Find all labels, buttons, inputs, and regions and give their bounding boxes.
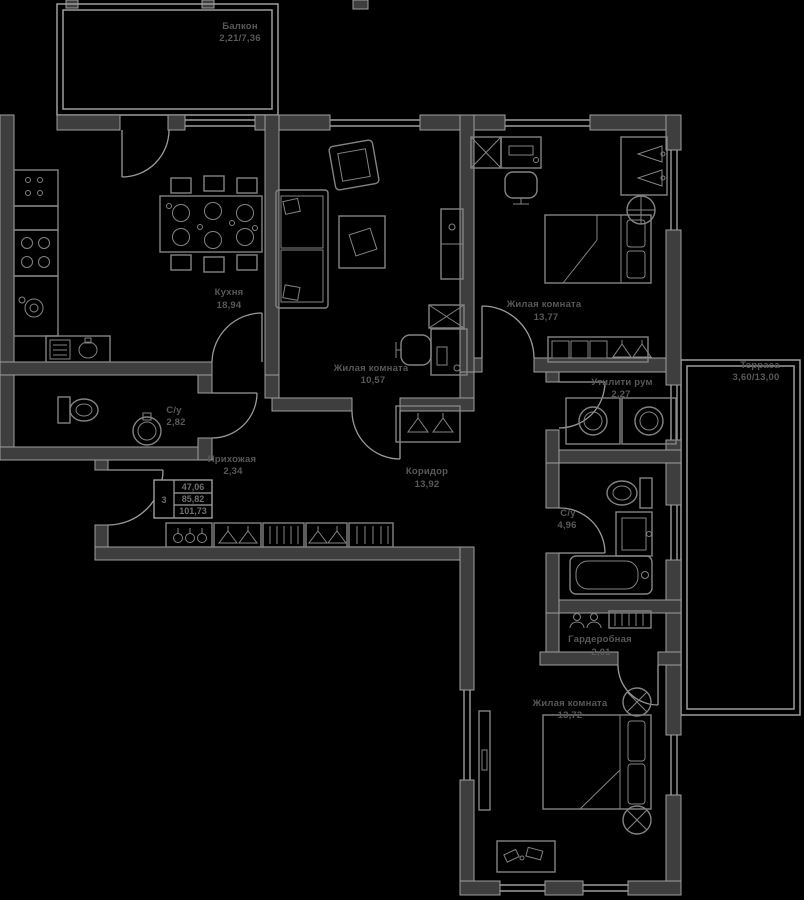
room-area-bedroom-bottom: 13,72	[558, 710, 583, 721]
room-label-utility: Утилити рум	[591, 377, 652, 388]
room-label-bathroom-big: С/у	[560, 508, 576, 519]
room-area-hallway: 2,34	[223, 466, 243, 477]
total-area-value: 85,82	[182, 494, 205, 504]
room-area-utility: 2,27	[611, 389, 630, 400]
room-area-bathroom-small: 2,82	[166, 417, 185, 428]
room-label-living-room: Жилая комната	[333, 363, 409, 374]
room-label-hallway: Прихожая	[208, 454, 256, 465]
room-area-wardrobe: 2,01	[591, 647, 611, 658]
room-area-living-room: 10,57	[361, 375, 386, 386]
room-label-balcony: Балкон	[222, 21, 258, 32]
room-label-wardrobe: Гардеробная	[568, 634, 632, 645]
room-area-bathroom-big: 4,96	[557, 520, 576, 531]
living-area-value: 47,06	[182, 482, 205, 492]
room-area-balcony: 2,21/7,36	[219, 33, 260, 44]
room-label-corridor: Коридор	[406, 466, 448, 477]
room-label-terrace: Терраса	[740, 360, 780, 371]
room-area-bedroom-top: 13,77	[534, 312, 559, 323]
room-label-bathroom-small: С/у	[166, 405, 182, 416]
room-area-corridor: 13,92	[415, 479, 440, 490]
room-label-kitchen: Кухня	[215, 287, 244, 298]
area-table: 3 47,06 85,82 101,73	[154, 480, 212, 518]
room-label-bedroom-top: Жилая комната	[506, 299, 582, 310]
total-area-with-summer-value: 101,73	[179, 506, 207, 516]
room-area-terrace: 3,60/13,00	[733, 372, 780, 383]
rooms-count-value: 3	[161, 495, 166, 505]
floor-plan-svg: 3 47,06 85,82 101,73 Балкон 2,21/7,36 Ку…	[0, 0, 804, 900]
room-label-bedroom-bottom: Жилая комната	[532, 698, 608, 709]
floor-plan: 3 47,06 85,82 101,73 Балкон 2,21/7,36 Ку…	[0, 0, 804, 900]
room-area-kitchen: 18,94	[217, 300, 242, 311]
